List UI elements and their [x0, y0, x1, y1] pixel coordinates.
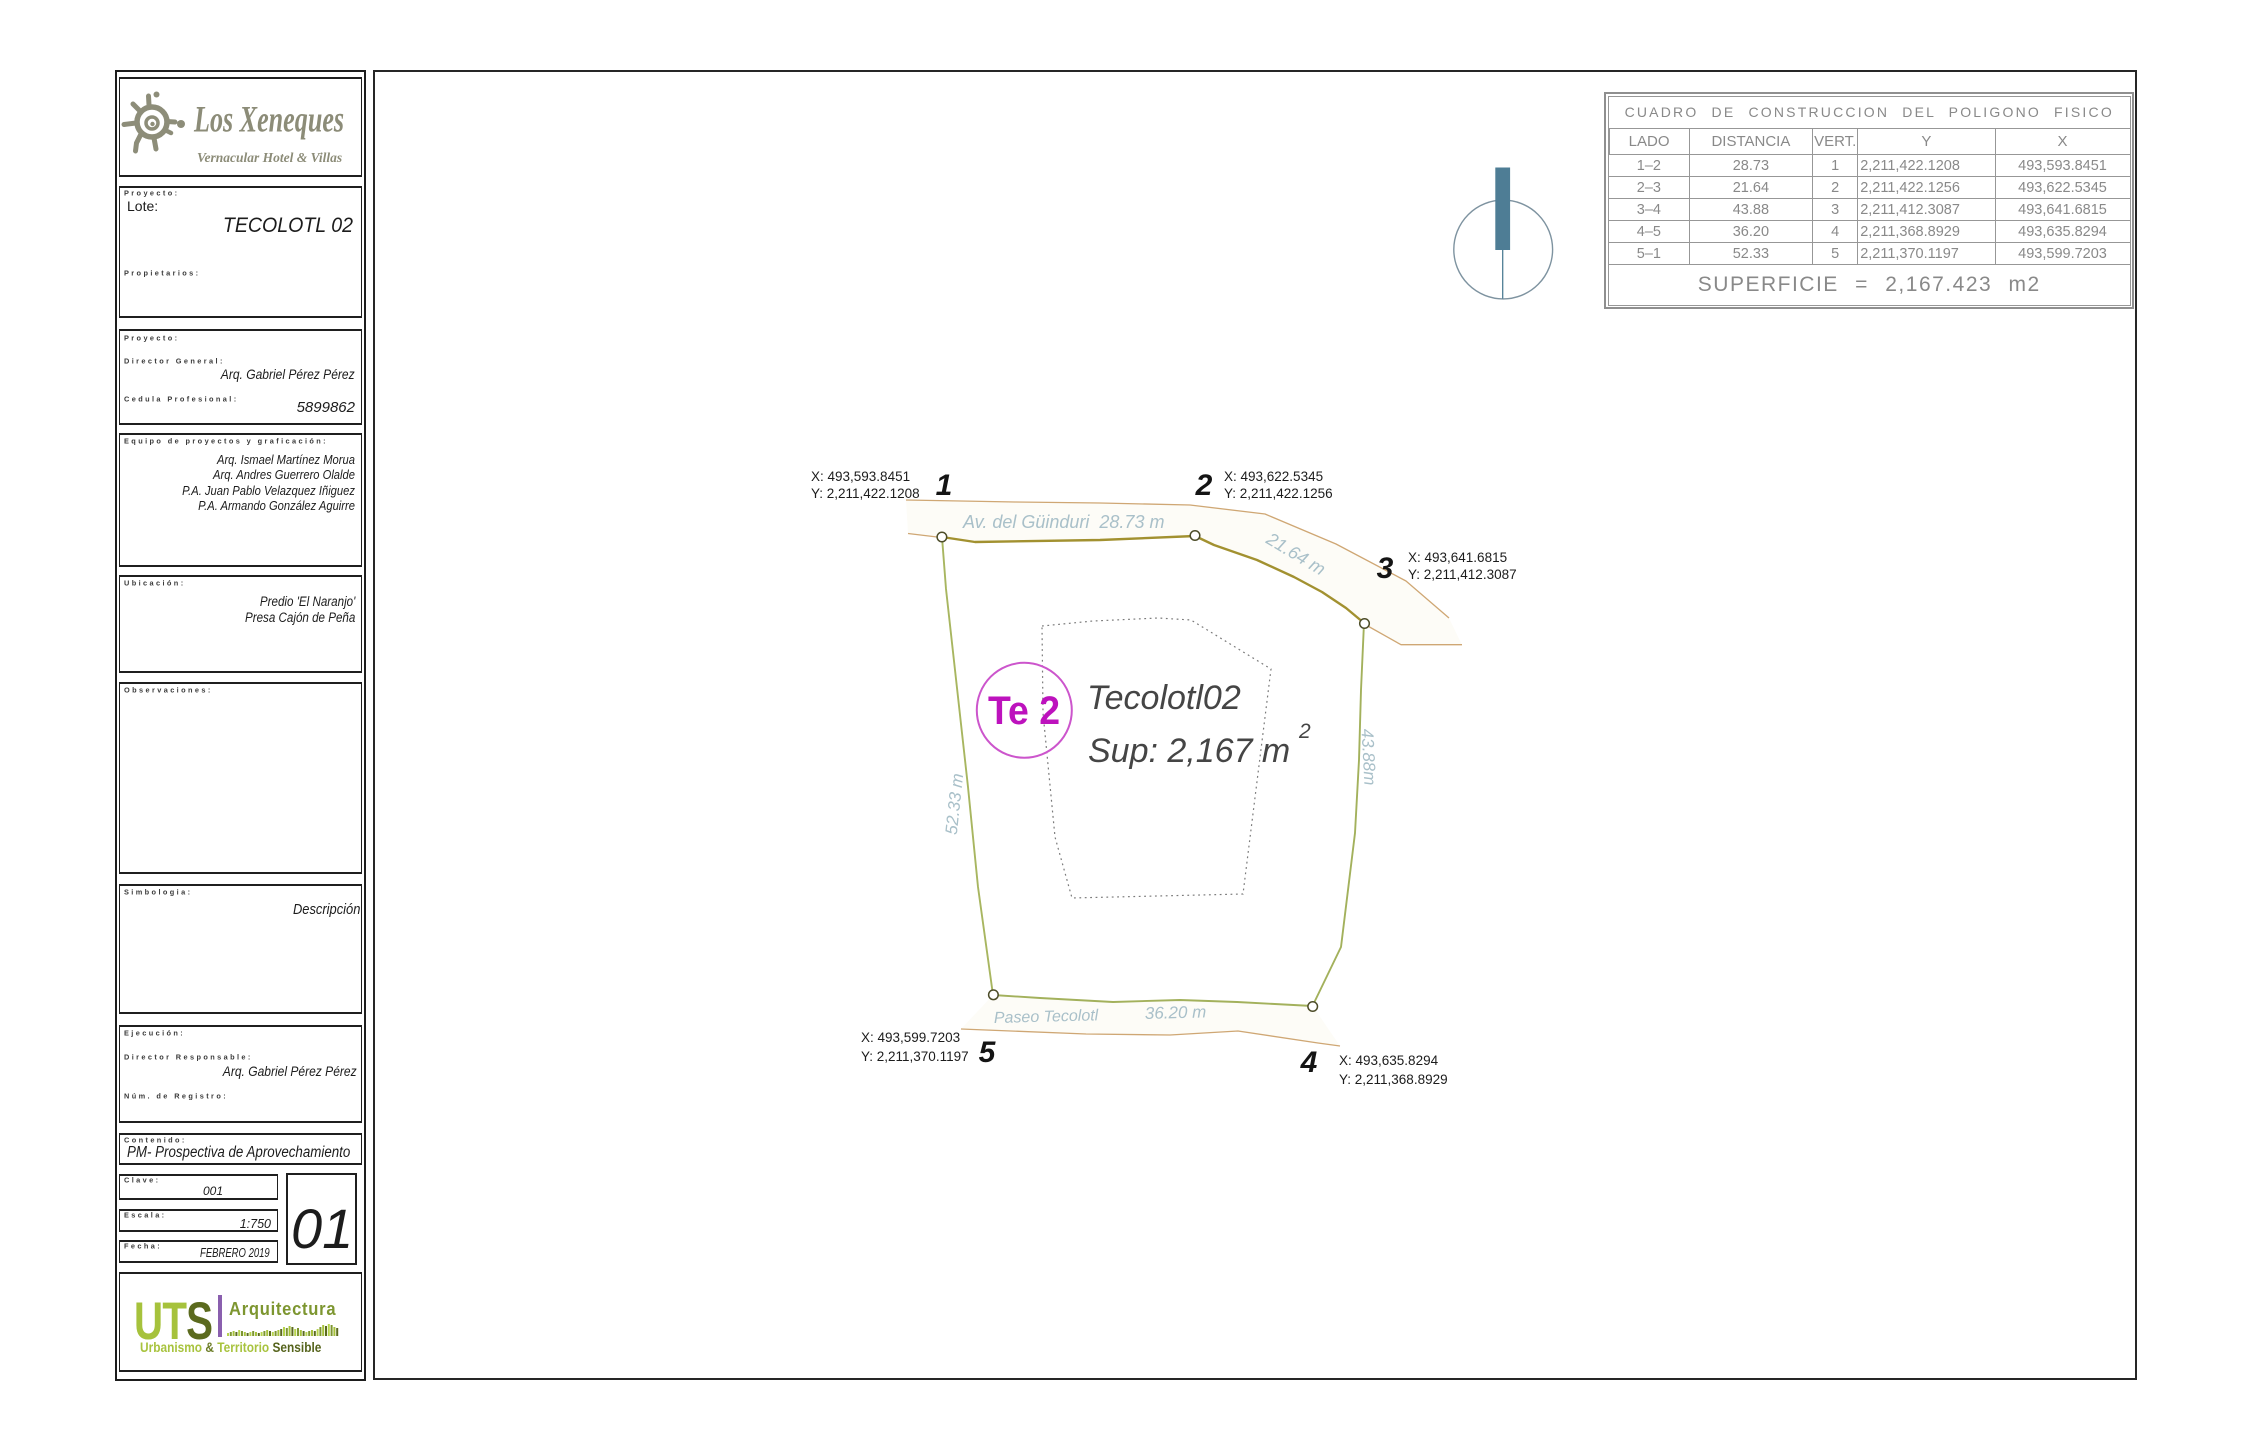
svg-text:43.88m: 43.88m [1358, 728, 1380, 786]
svg-text:Tecolotl02: Tecolotl02 [1087, 679, 1241, 717]
svg-text:36.20 m: 36.20 m [1145, 1002, 1207, 1023]
svg-text:3: 3 [1377, 552, 1394, 585]
svg-text:X: 493,622.5345: X: 493,622.5345 [1224, 469, 1323, 484]
svg-text:Paseo Tecolotl: Paseo Tecolotl [994, 1007, 1099, 1027]
svg-text:2: 2 [1298, 720, 1311, 743]
svg-text:X: 493,635.8294: X: 493,635.8294 [1339, 1053, 1439, 1068]
svg-text:Y: 2,211,412.3087: Y: 2,211,412.3087 [1408, 567, 1517, 582]
svg-text:X: 493,593.8451: X: 493,593.8451 [811, 469, 910, 484]
svg-text:4: 4 [1300, 1046, 1318, 1079]
svg-text:X: 493,599.7203: X: 493,599.7203 [861, 1030, 960, 1045]
svg-text:2: 2 [1195, 469, 1213, 502]
svg-text:Av. del Güinduri 28.73 m: Av. del Güinduri 28.73 m [962, 512, 1164, 532]
svg-text:5: 5 [979, 1036, 997, 1069]
svg-text:Y: 2,211,368.8929: Y: 2,211,368.8929 [1339, 1072, 1448, 1087]
svg-text:52.33 m: 52.33 m [942, 773, 967, 836]
svg-text:Sup: 2,167 m: Sup: 2,167 m [1088, 732, 1290, 770]
svg-text:X: 493,641.6815: X: 493,641.6815 [1408, 550, 1507, 565]
svg-text:Y: 2,211,370.1197: Y: 2,211,370.1197 [861, 1049, 969, 1064]
svg-text:Y: 2,211,422.1208: Y: 2,211,422.1208 [811, 486, 920, 501]
svg-text:1: 1 [936, 469, 953, 502]
svg-text:Y: 2,211,422.1256: Y: 2,211,422.1256 [1224, 486, 1333, 501]
svg-text:Te 2: Te 2 [988, 689, 1060, 733]
